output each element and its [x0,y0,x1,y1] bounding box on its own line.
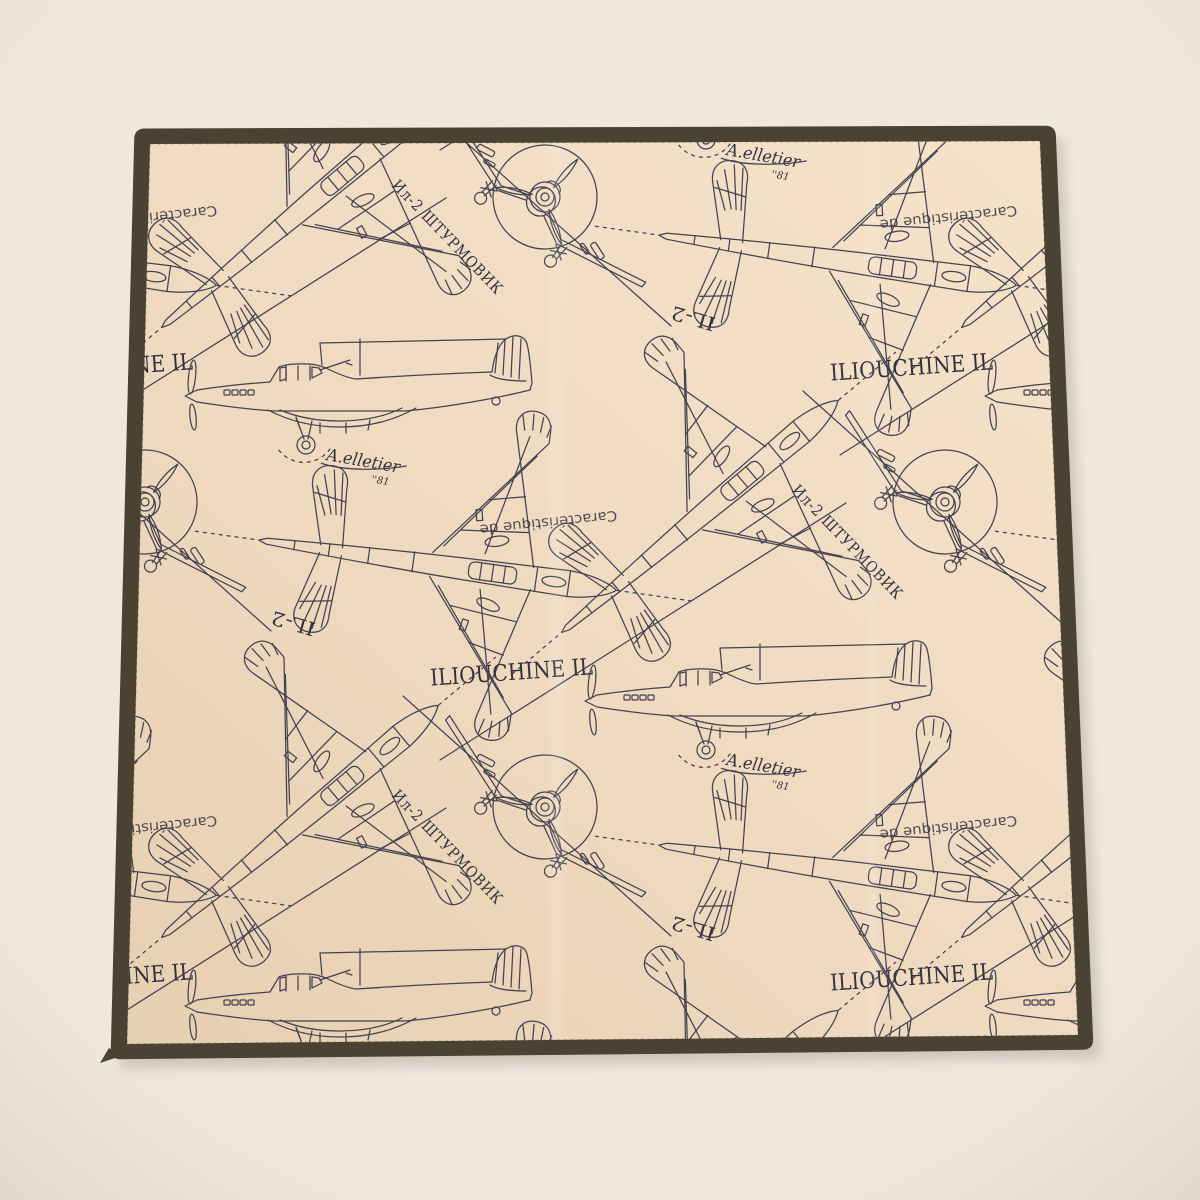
fabric-crease [544,130,570,1060]
fabric-crease [862,130,882,1060]
product-photo: Ил-2 ШТУРМОВИК Caractéristique de ILIOUC… [0,0,1200,1200]
fabric-square [0,0,1200,1200]
